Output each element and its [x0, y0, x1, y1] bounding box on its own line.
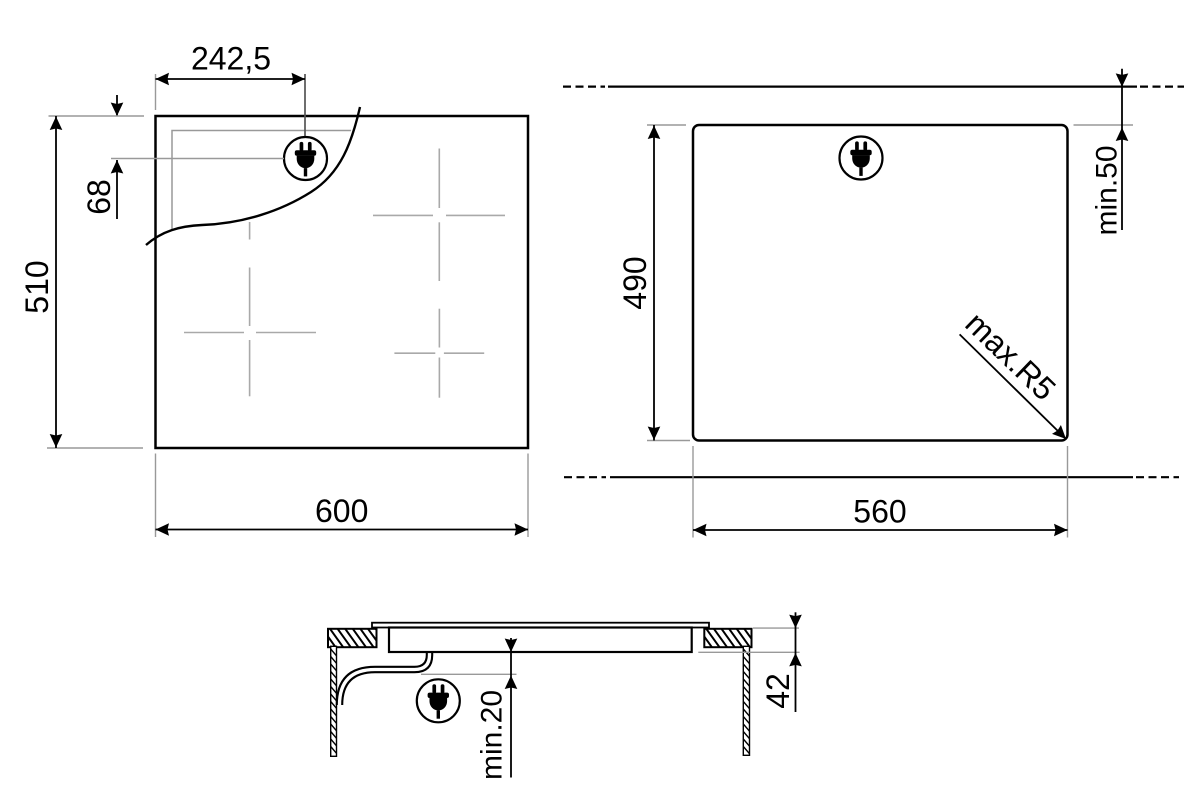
svg-text:68: 68 [81, 179, 117, 215]
svg-text:min.50: min.50 [1091, 145, 1124, 235]
svg-text:560: 560 [853, 494, 906, 530]
svg-text:490: 490 [617, 256, 653, 309]
svg-text:min.20: min.20 [476, 690, 509, 780]
svg-text:42: 42 [760, 673, 796, 709]
svg-text:600: 600 [315, 493, 368, 529]
svg-text:242,5: 242,5 [191, 41, 271, 77]
svg-text:510: 510 [19, 260, 55, 313]
